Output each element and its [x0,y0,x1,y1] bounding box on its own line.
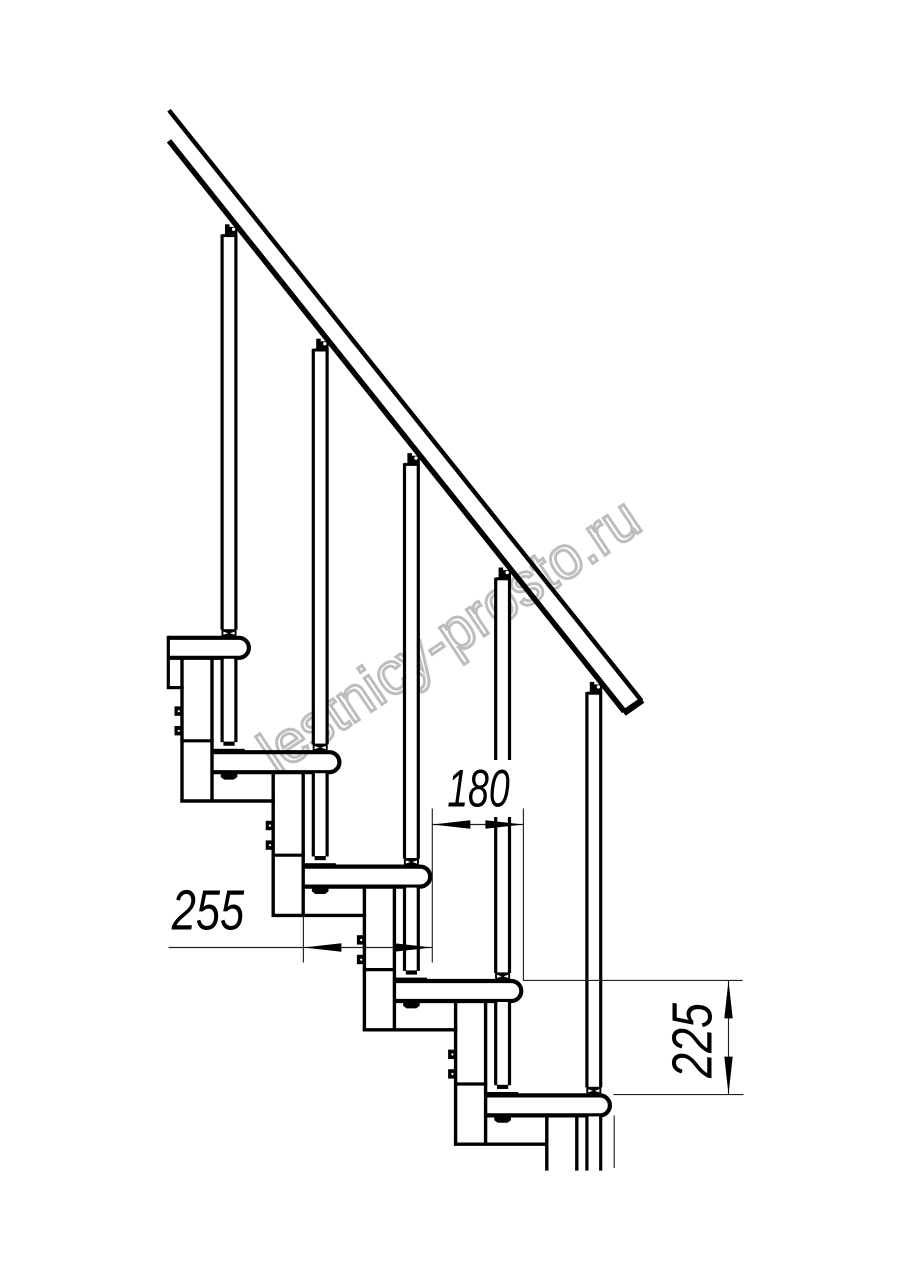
svg-text:255: 255 [171,880,245,943]
svg-text:225: 225 [662,1003,725,1079]
svg-text:180: 180 [447,760,510,819]
